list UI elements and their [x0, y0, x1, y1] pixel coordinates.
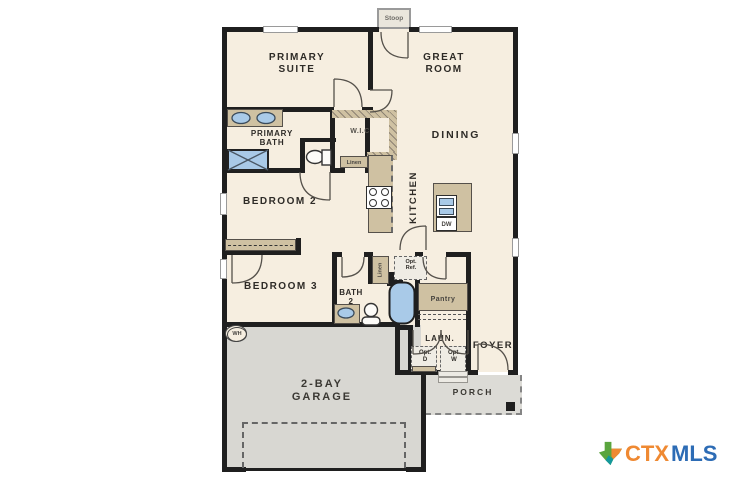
texas-icon: [596, 440, 623, 467]
wall: [368, 27, 373, 90]
shower-icon: [227, 149, 269, 171]
porch-steps: [438, 377, 468, 383]
room-label-bedroom2: BEDROOM 2: [226, 196, 334, 208]
room-label-wic: W.I.C: [334, 128, 386, 136]
room-label-porch: PORCH: [446, 388, 500, 398]
room-label-dining: DINING: [420, 129, 492, 141]
closet-rod-dash: [228, 245, 293, 246]
floor-plan: Stoop Linen: [0, 0, 740, 480]
garage-bay-outline: [242, 422, 406, 468]
window: [263, 26, 298, 33]
wall: [513, 27, 518, 375]
window: [512, 238, 519, 257]
room-label-garage: 2-BAY GARAGE: [276, 378, 368, 403]
stoop-label: Stoop: [377, 8, 411, 29]
ctxmls-logo: CTXMLS: [596, 440, 717, 467]
room-label-primary-bath: PRIMARY BATH: [242, 129, 302, 147]
vanity-counter: [227, 109, 283, 127]
room-label-pantry: Pantry: [418, 296, 468, 304]
wall: [508, 370, 518, 375]
garage-door-sill: [244, 468, 408, 471]
opt-d-label: Opt. D: [418, 350, 432, 364]
window: [220, 259, 227, 279]
laundry-step: [412, 366, 436, 372]
linen2-label: Linen: [377, 263, 383, 278]
kitchen-label-text: KITCHEN: [407, 171, 418, 224]
room-label-great-room: GREAT ROOM: [408, 52, 480, 75]
stove-burner: [369, 188, 377, 196]
wall: [222, 322, 400, 327]
water-heater-icon: WH: [225, 325, 247, 342]
porch-post: [506, 402, 515, 411]
wall: [296, 238, 301, 255]
room-label-primary-suite: PRIMARY SUITE: [252, 52, 342, 75]
linen-closet-2: Linen: [372, 256, 389, 284]
opt-ref-label: Opt. Ref.: [400, 259, 422, 272]
room-label-bedroom3: BEDROOM 3: [226, 281, 336, 293]
optional-washer: Opt. W: [440, 346, 466, 372]
logo-ctx: CTX: [625, 441, 669, 467]
linen-closet: Linen: [340, 156, 368, 168]
window: [512, 133, 519, 154]
optional-refrigerator: Opt. Ref.: [394, 256, 427, 280]
wall: [330, 112, 335, 170]
pantry-shelf-dash: [418, 314, 466, 315]
pantry-shelf-dash: [418, 319, 466, 320]
logo-mls: MLS: [671, 441, 717, 467]
opt-w-label: Opt. W: [447, 350, 461, 364]
wall: [222, 27, 379, 32]
wall: [421, 372, 426, 472]
room-label-bath2: BATH 2: [336, 288, 366, 306]
wh-label: WH: [227, 327, 247, 342]
closet-shelf: [332, 110, 397, 118]
room-label-kitchen: KITCHEN: [383, 168, 443, 226]
stove-burner: [369, 199, 377, 207]
room-label-foyer: FOYER: [468, 341, 518, 352]
room-label-laundry: LAUN.: [414, 334, 466, 343]
bath2-sink-counter: [334, 304, 360, 324]
window: [419, 26, 452, 33]
